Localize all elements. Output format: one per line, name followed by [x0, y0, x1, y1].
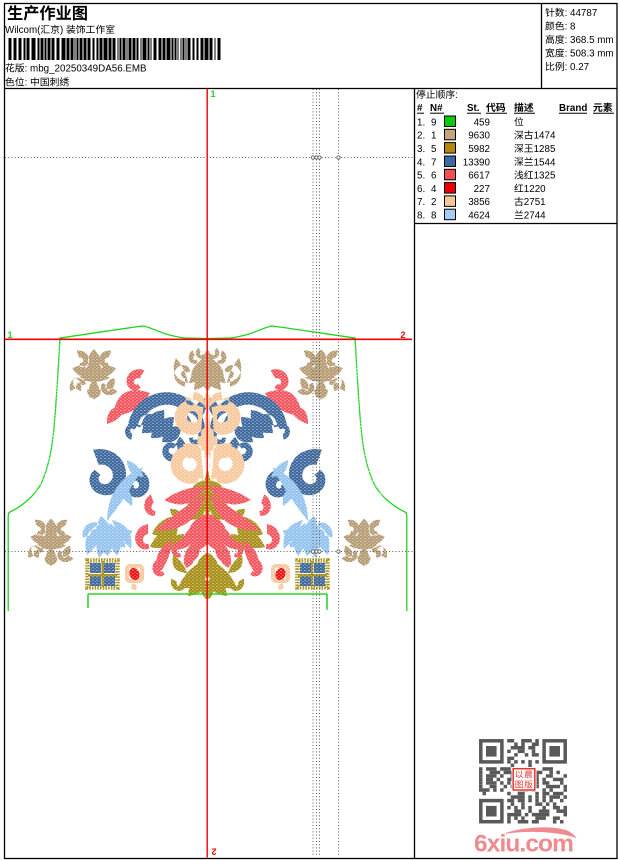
svg-text:: 508.3 mm: : 508.3 mm	[565, 49, 614, 60]
svg-text:1: 1	[8, 330, 13, 340]
svg-text:5.: 5.	[417, 171, 425, 182]
svg-text:4624: 4624	[468, 211, 490, 222]
svg-text:: 44787: : 44787	[565, 8, 598, 19]
svg-text:1544: 1544	[534, 157, 556, 168]
svg-text:9630: 9630	[468, 131, 490, 142]
svg-text:Brand: Brand	[559, 103, 587, 114]
svg-text:6617: 6617	[468, 171, 490, 182]
svg-text:7: 7	[431, 157, 436, 168]
svg-text:2: 2	[431, 197, 436, 208]
svg-text:5: 5	[431, 144, 437, 155]
svg-text:3856: 3856	[468, 197, 490, 208]
svg-text:2: 2	[401, 330, 406, 340]
svg-text:Wilcom(: Wilcom(	[5, 25, 41, 36]
svg-text:5982: 5982	[468, 144, 490, 155]
svg-text:4.: 4.	[417, 157, 425, 168]
svg-text:2744: 2744	[524, 211, 546, 222]
svg-text:2: 2	[211, 847, 216, 857]
svg-text:3.: 3.	[417, 144, 425, 155]
svg-text:: 0.27: : 0.27	[565, 62, 590, 73]
svg-text:6: 6	[431, 171, 437, 182]
svg-text:7.: 7.	[417, 197, 425, 208]
svg-text:1325: 1325	[534, 171, 556, 182]
svg-text:1285: 1285	[534, 144, 556, 155]
svg-text:1474: 1474	[534, 131, 556, 142]
svg-text:N#: N#	[430, 103, 443, 114]
svg-text:13390: 13390	[463, 157, 491, 168]
svg-text:4: 4	[431, 184, 437, 195]
svg-text:: 8: : 8	[565, 22, 576, 33]
svg-text:227: 227	[474, 184, 490, 195]
svg-text:: mbg_20250349DA56.EMB: : mbg_20250349DA56.EMB	[25, 64, 147, 75]
svg-text:1: 1	[211, 89, 216, 99]
svg-text::: :	[25, 78, 28, 89]
svg-text:): )	[60, 25, 63, 36]
svg-text:459: 459	[474, 117, 490, 128]
svg-text:1220: 1220	[524, 184, 546, 195]
svg-text:9: 9	[431, 117, 436, 128]
svg-text:8.: 8.	[417, 211, 425, 222]
svg-text:#: #	[417, 103, 423, 114]
svg-text:6xiu.com: 6xiu.com	[474, 831, 573, 858]
svg-text:: 368.5 mm: : 368.5 mm	[565, 35, 614, 46]
svg-text:1: 1	[431, 131, 436, 142]
svg-text::: :	[455, 90, 458, 101]
svg-text:1.: 1.	[417, 117, 425, 128]
svg-text:St.: St.	[467, 103, 480, 114]
svg-text:6.: 6.	[417, 184, 425, 195]
svg-text:2.: 2.	[417, 131, 425, 142]
svg-text:8: 8	[431, 211, 437, 222]
svg-text:2751: 2751	[524, 197, 546, 208]
